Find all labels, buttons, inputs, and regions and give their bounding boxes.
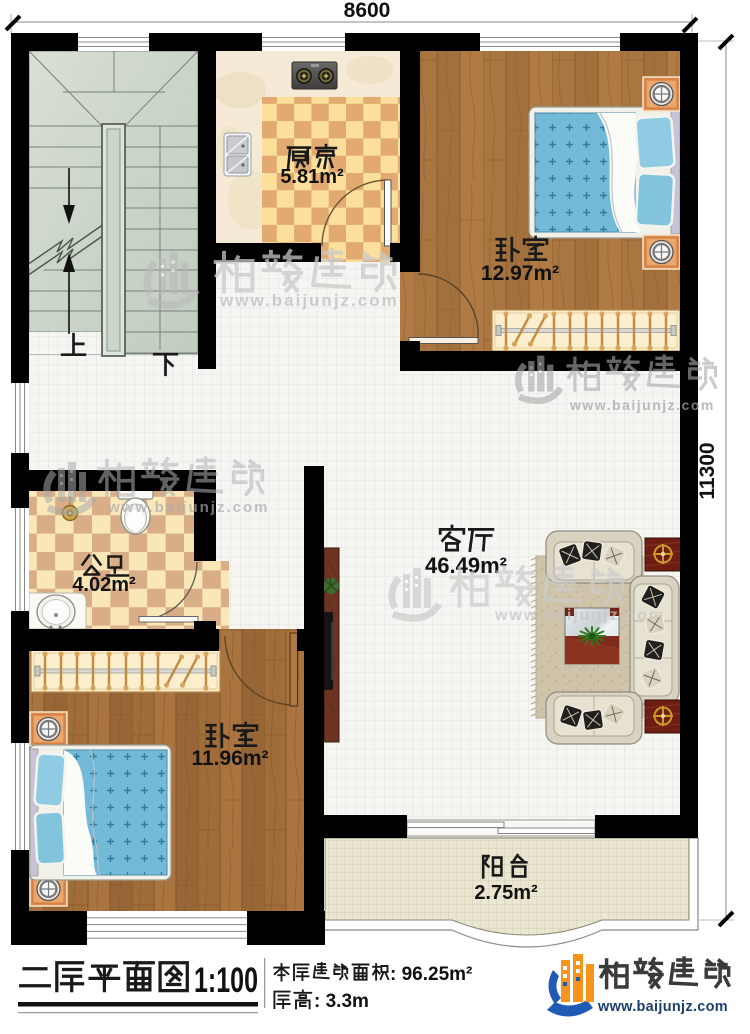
svg-text:11300: 11300 xyxy=(696,442,719,499)
svg-text:: 3.3m: : 3.3m xyxy=(314,991,369,1012)
svg-text:www.baijunjz.com: www.baijunjz.com xyxy=(107,499,269,516)
svg-text:46.49m²: 46.49m² xyxy=(425,553,507,578)
svg-text:8600: 8600 xyxy=(344,0,391,22)
svg-text:www.baijunjz.com: www.baijunjz.com xyxy=(597,999,728,1015)
svg-text:12.97m²: 12.97m² xyxy=(481,262,559,285)
svg-text:1:100: 1:100 xyxy=(194,961,258,1000)
svg-text:4.02m²: 4.02m² xyxy=(72,574,136,596)
svg-text:www.baijunjz.com: www.baijunjz.com xyxy=(494,607,665,624)
svg-text:www.baijunjz.com: www.baijunjz.com xyxy=(569,397,715,413)
svg-text:5.81m²: 5.81m² xyxy=(280,166,344,188)
svg-text:: 96.25m²: : 96.25m² xyxy=(390,964,472,985)
svg-text:www.baijunjz.com: www.baijunjz.com xyxy=(219,291,399,310)
svg-text:11.96m²: 11.96m² xyxy=(191,747,268,770)
svg-text:2.75m²: 2.75m² xyxy=(474,882,538,904)
